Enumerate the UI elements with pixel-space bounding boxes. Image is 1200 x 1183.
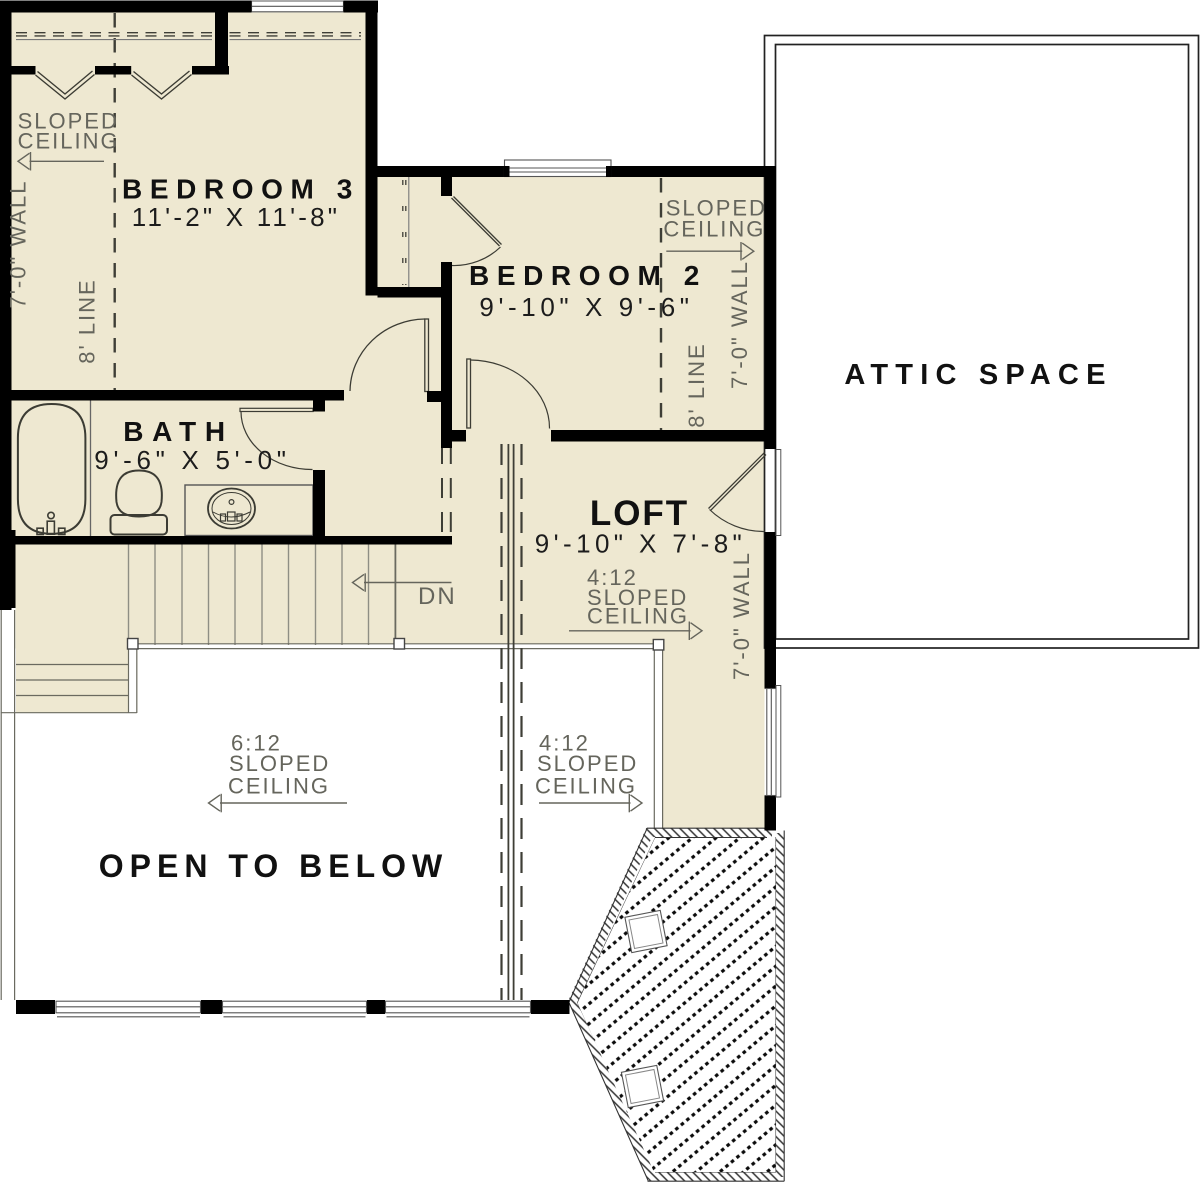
- svg-text:BEDROOM 3: BEDROOM 3: [122, 174, 360, 205]
- svg-text:LOFT: LOFT: [590, 494, 689, 533]
- svg-text:9'-10" X 7'-8": 9'-10" X 7'-8": [535, 529, 746, 559]
- svg-text:9'-6" X 5'-0": 9'-6" X 5'-0": [94, 445, 290, 475]
- svg-text:SLOPED: SLOPED: [229, 751, 330, 776]
- svg-text:CEILING: CEILING: [535, 774, 637, 799]
- svg-text:SLOPED: SLOPED: [537, 751, 638, 776]
- svg-text:11'-2" X 11'-8": 11'-2" X 11'-8": [132, 202, 340, 232]
- svg-text:9'-10" X 9'-6": 9'-10" X 9'-6": [479, 292, 693, 322]
- svg-text:CEILING: CEILING: [18, 128, 120, 153]
- svg-text:7'-0" WALL: 7'-0" WALL: [727, 260, 752, 389]
- svg-text:ATTIC SPACE: ATTIC SPACE: [844, 359, 1112, 391]
- svg-text:CEILING: CEILING: [587, 604, 689, 629]
- svg-text:CEILING: CEILING: [228, 774, 330, 799]
- svg-text:OPEN TO BELOW: OPEN TO BELOW: [99, 848, 448, 884]
- svg-text:8' LINE: 8' LINE: [75, 278, 100, 363]
- svg-text:DN: DN: [418, 583, 457, 610]
- svg-text:CEILING: CEILING: [663, 217, 765, 242]
- svg-text:8' LINE: 8' LINE: [684, 342, 709, 427]
- svg-text:7'-0" WALL: 7'-0" WALL: [729, 551, 754, 680]
- svg-text:BEDROOM 2: BEDROOM 2: [469, 260, 707, 291]
- svg-text:BATH: BATH: [123, 416, 234, 447]
- svg-text:7'-0" WALL: 7'-0" WALL: [6, 179, 31, 308]
